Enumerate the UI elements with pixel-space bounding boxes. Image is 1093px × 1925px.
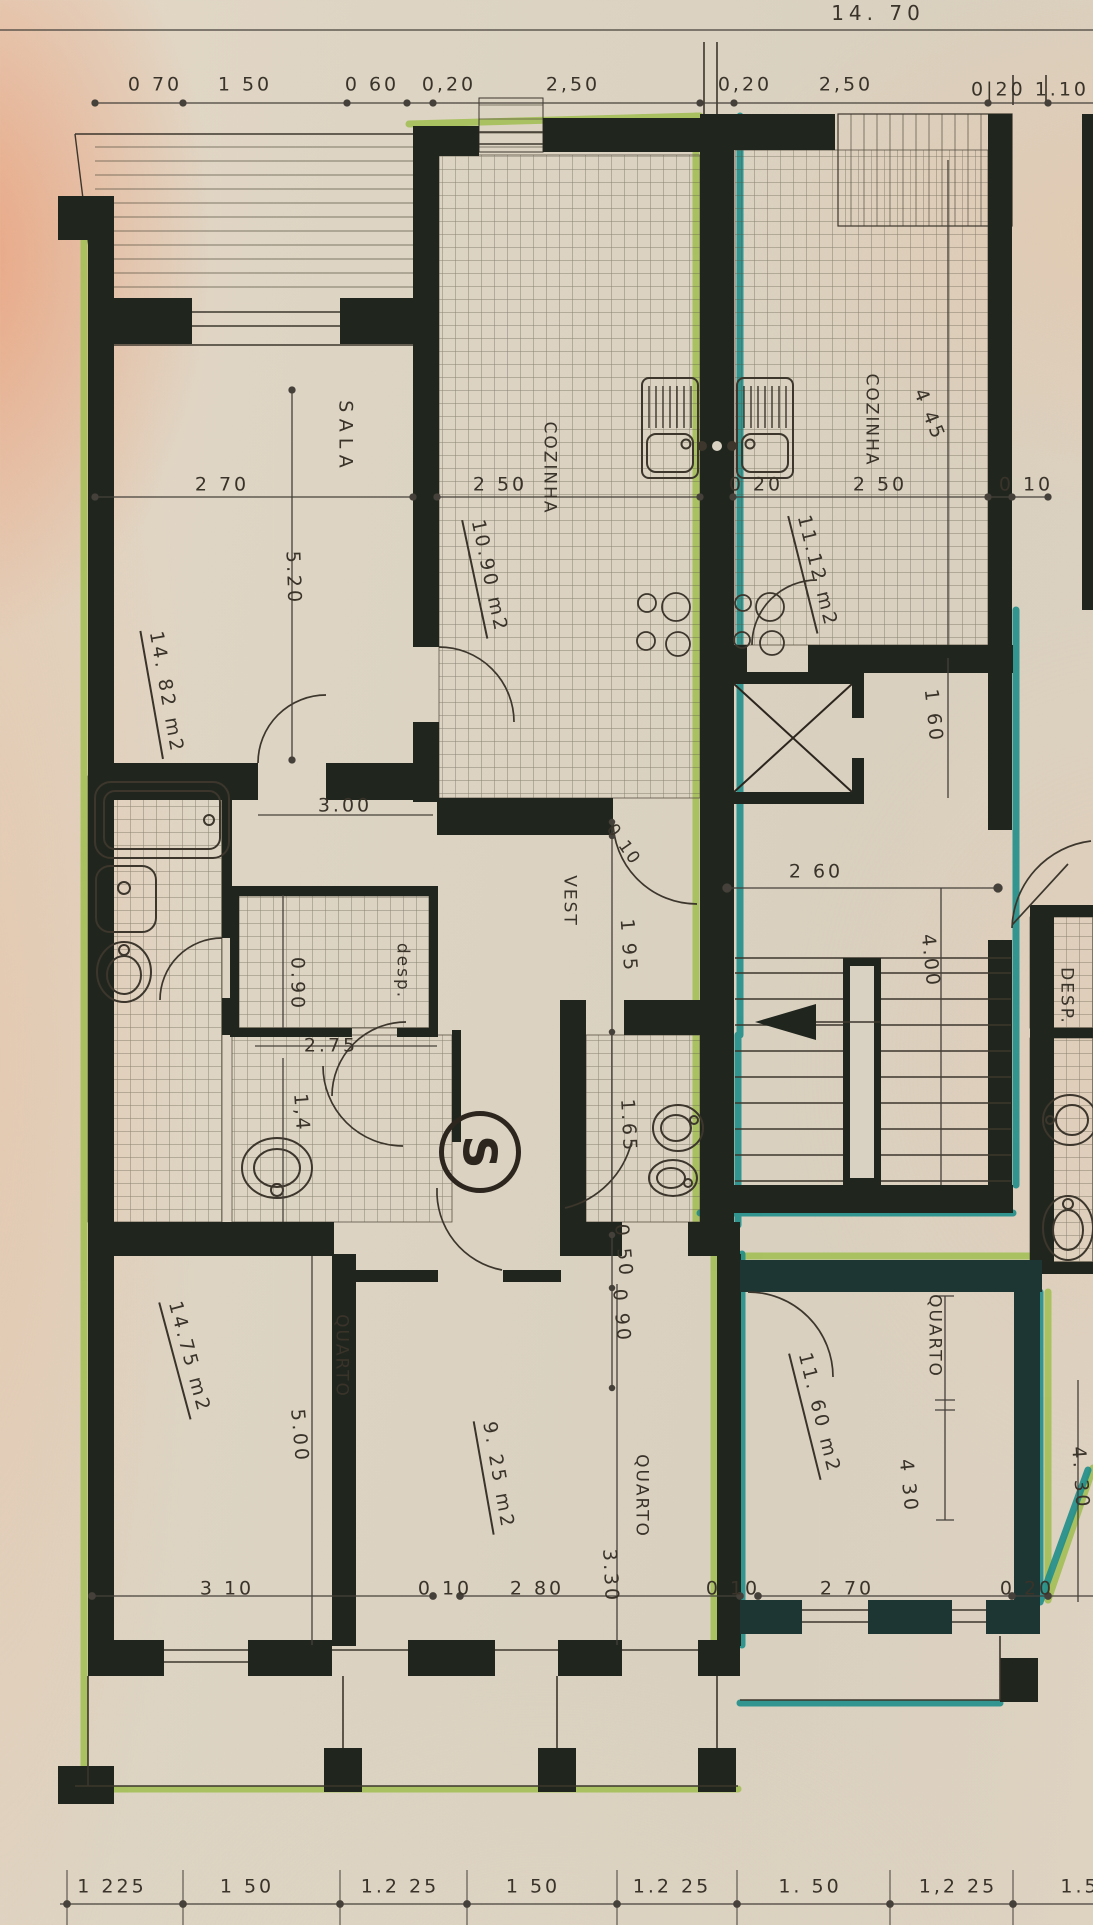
right-quarto-walls xyxy=(740,1260,1042,1634)
dim-far-right-quarto-depth: 4. 30 xyxy=(1068,1446,1091,1511)
dim-quarto2-depth: 3.30 xyxy=(599,1548,621,1603)
dim-bottom-6: 1. 50 xyxy=(778,1878,841,1897)
stairs xyxy=(735,958,1011,1185)
dim-core-depth: 4.00 xyxy=(918,933,943,989)
dim-bottom-7: 1,2 25 xyxy=(919,1878,997,1897)
dim-total-width: 14. 70 xyxy=(831,3,925,23)
dim-lower-1: 3 10 xyxy=(200,1580,254,1599)
dim-bottom-2: 1 50 xyxy=(220,1878,274,1897)
dim-bottom-8: 1.5 xyxy=(1060,1878,1093,1897)
dim-party-wall: 0 20 xyxy=(729,476,783,495)
room-label-cozinha-right: COZINHA xyxy=(863,373,880,466)
dim-right-wall: 0 10 xyxy=(999,476,1053,495)
room-label-quarto2: QUARTO xyxy=(633,1454,650,1538)
room-label-sala: SALA xyxy=(336,400,355,473)
dim-bottom-3: 1.2 25 xyxy=(361,1878,439,1897)
dim-quarto1-depth: 5.00 xyxy=(287,1408,311,1464)
dim-desp-length: 2.75 xyxy=(304,1037,358,1056)
dim-sala-depth: 5.20 xyxy=(283,551,304,606)
stair-symbol-letter: S xyxy=(453,1135,507,1168)
dim-cozinha-right-width: 2 50 xyxy=(853,476,907,495)
floor-plan: 14. 70 0 70 1 50 0 60 0,20 2,50 0,20 2,5… xyxy=(0,0,1093,1925)
dim-top-6: 0,20 xyxy=(718,76,772,95)
dim-top-1: 0 70 xyxy=(128,76,182,95)
dim-sala-width: 2 70 xyxy=(195,476,249,495)
dim-cozinha-left-width: 2 50 xyxy=(473,476,527,495)
dim-cozinha-right-2: 1 60 xyxy=(921,688,946,744)
dim-top-3: 0 60 xyxy=(345,76,399,95)
dim-lower-4: 0 10 xyxy=(706,1580,760,1599)
dim-bottom-1: 1 225 xyxy=(77,1878,146,1897)
dim-core-width: 2 60 xyxy=(789,863,843,882)
dim-top-4: 0,20 xyxy=(422,76,476,95)
dim-quarto-right-depth: 4 30 xyxy=(896,1458,921,1514)
dim-bottom-5: 1.2 25 xyxy=(633,1878,711,1897)
dim-vest-depth: 1 95 xyxy=(617,918,640,974)
stair-symbol-circle: S xyxy=(439,1111,521,1193)
room-label-desp: desp. xyxy=(394,943,411,999)
dim-lower-3: 2 80 xyxy=(510,1580,564,1599)
room-label-desp-far-right: DESP. xyxy=(1058,967,1075,1025)
dim-bath-2: 0 50 xyxy=(611,1223,635,1279)
dim-sala-wall: 3.00 xyxy=(318,797,372,816)
room-label-quarto1: QUARTO xyxy=(333,1314,350,1398)
room-label-cozinha-left: COZINHA xyxy=(541,421,558,514)
dim-bath-3: 0 90 xyxy=(609,1288,633,1344)
dim-bottom-4: 1 50 xyxy=(506,1878,560,1897)
dim-top-7: 2,50 xyxy=(819,76,873,95)
room-label-quarto-right: QUARTO xyxy=(926,1294,943,1378)
dim-top-8: 0|20 1.10 xyxy=(971,81,1089,100)
dim-top-5: 2,50 xyxy=(546,76,600,95)
dim-desp-width2: 1,4 xyxy=(290,1093,312,1133)
dim-lower-2: 0 10 xyxy=(418,1580,472,1599)
room-label-vest: VEST xyxy=(561,875,578,927)
dim-top-2: 1 50 xyxy=(218,76,272,95)
dim-lower-5: 2 70 xyxy=(820,1580,874,1599)
dim-desp-width: 0.90 xyxy=(288,957,307,1011)
dim-bath-width: 1.65 xyxy=(617,1098,639,1153)
dim-lower-6: 0 20 xyxy=(1000,1580,1054,1599)
